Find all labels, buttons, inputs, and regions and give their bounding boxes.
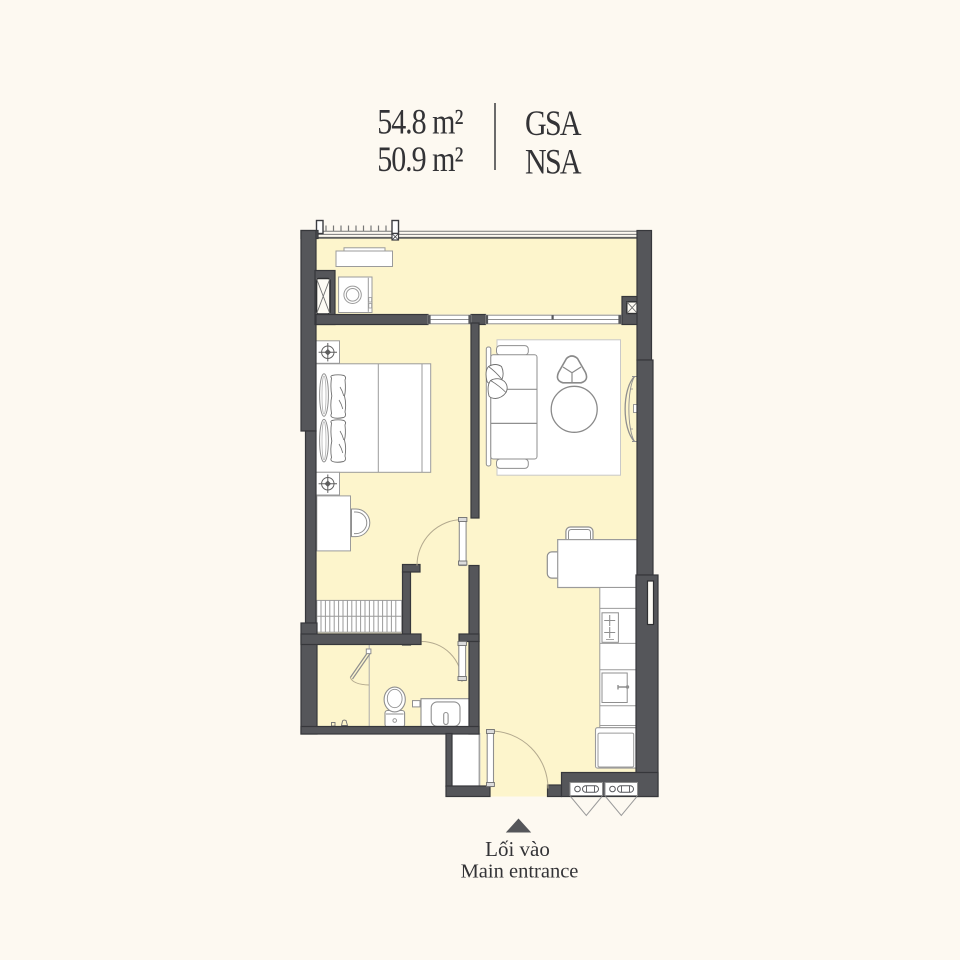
svg-text:50.9 m²: 50.9 m²	[377, 139, 463, 179]
svg-text:NSA: NSA	[525, 142, 582, 182]
svg-text:54.8 m²: 54.8 m²	[377, 102, 463, 142]
svg-text:GSA: GSA	[525, 103, 582, 143]
svg-text:Lối vào: Lối vào	[485, 837, 550, 861]
svg-text:Main entrance: Main entrance	[461, 861, 579, 883]
